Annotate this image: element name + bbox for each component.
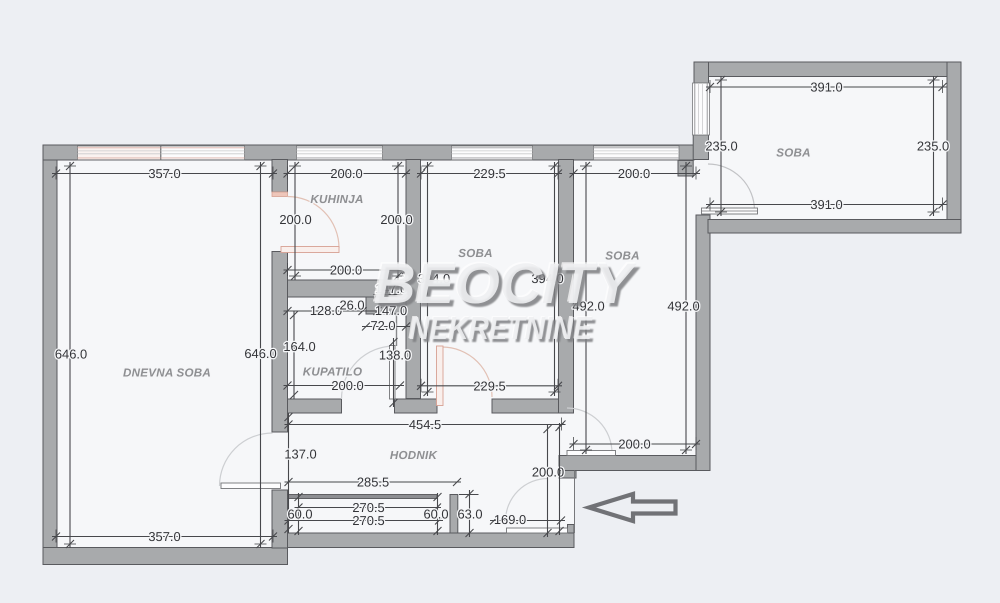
svg-text:200.0: 200.0 bbox=[618, 437, 650, 452]
svg-text:357.0: 357.0 bbox=[148, 166, 180, 181]
svg-text:200.0: 200.0 bbox=[330, 166, 362, 181]
svg-text:454.5: 454.5 bbox=[409, 417, 441, 432]
svg-text:646.0: 646.0 bbox=[55, 347, 87, 362]
svg-text:KUHINJA: KUHINJA bbox=[310, 193, 363, 206]
svg-text:137.0: 137.0 bbox=[284, 447, 316, 462]
svg-text:NEKRETNINE: NEKRETNINE bbox=[409, 310, 593, 346]
svg-text:270.5: 270.5 bbox=[352, 513, 384, 528]
svg-text:138.0: 138.0 bbox=[379, 348, 411, 363]
svg-text:26.0: 26.0 bbox=[339, 298, 364, 313]
svg-text:128.0: 128.0 bbox=[310, 303, 342, 318]
svg-text:391.0: 391.0 bbox=[810, 80, 842, 95]
svg-text:DNEVNA SOBA: DNEVNA SOBA bbox=[123, 367, 211, 380]
svg-text:72.0: 72.0 bbox=[370, 318, 395, 333]
svg-text:200.0: 200.0 bbox=[380, 212, 412, 227]
svg-text:200.0: 200.0 bbox=[331, 378, 363, 393]
svg-text:63.0: 63.0 bbox=[457, 507, 482, 522]
svg-text:KUPATILO: KUPATILO bbox=[303, 366, 363, 379]
svg-text:BEOCITY: BEOCITY bbox=[374, 252, 638, 316]
svg-text:492.0: 492.0 bbox=[667, 299, 699, 314]
svg-text:SOBA: SOBA bbox=[776, 147, 811, 160]
svg-text:60.0: 60.0 bbox=[287, 507, 312, 522]
svg-text:391.0: 391.0 bbox=[810, 197, 842, 212]
svg-text:235.0: 235.0 bbox=[705, 139, 737, 154]
svg-text:169.0: 169.0 bbox=[494, 512, 526, 527]
svg-text:200.0: 200.0 bbox=[330, 263, 362, 278]
svg-text:200.0: 200.0 bbox=[618, 166, 650, 181]
svg-text:60.0: 60.0 bbox=[423, 507, 448, 522]
svg-text:235.0: 235.0 bbox=[917, 139, 949, 154]
svg-text:229.5: 229.5 bbox=[473, 378, 505, 393]
svg-text:HODNIK: HODNIK bbox=[390, 449, 439, 462]
svg-text:646.0: 646.0 bbox=[244, 346, 276, 361]
svg-text:200.0: 200.0 bbox=[279, 212, 311, 227]
svg-text:164.0: 164.0 bbox=[283, 339, 315, 354]
svg-text:357.0: 357.0 bbox=[148, 529, 180, 544]
svg-text:285.5: 285.5 bbox=[357, 475, 389, 490]
svg-text:229.5: 229.5 bbox=[473, 166, 505, 181]
